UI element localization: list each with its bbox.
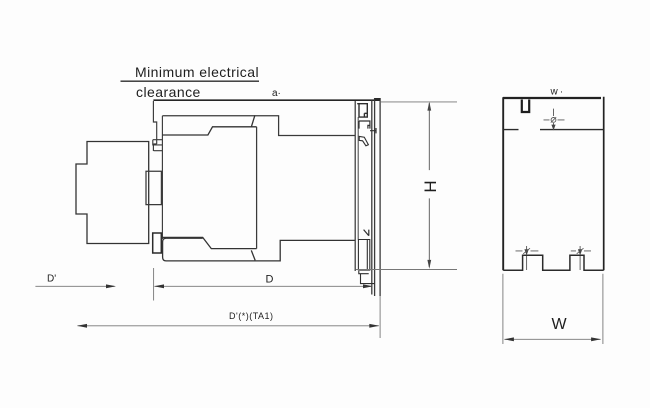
svg-text:D': D' [47, 274, 56, 285]
svg-text:W: W [552, 316, 568, 333]
svg-text:a·: a· [272, 88, 281, 99]
svg-text:w·: w· [550, 87, 566, 98]
svg-text:H: H [421, 180, 440, 192]
svg-text:D'(*)(TA1): D'(*)(TA1) [229, 311, 274, 321]
svg-text:clearance: clearance [136, 84, 201, 100]
svg-text:Minimum electrical: Minimum electrical [135, 64, 259, 80]
svg-text:D: D [266, 274, 274, 286]
